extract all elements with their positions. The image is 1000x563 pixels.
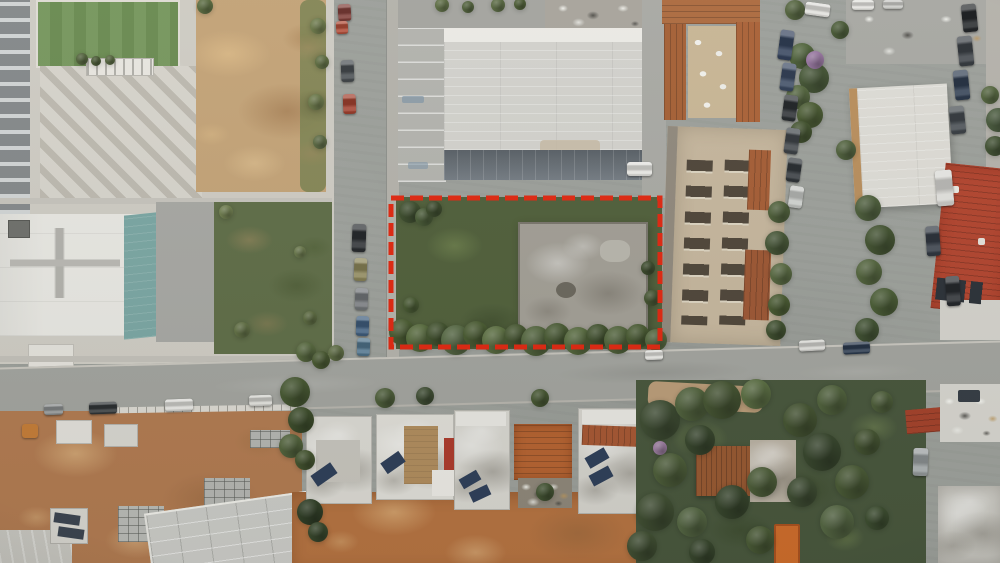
car-grey-right-street-4 — [949, 105, 967, 134]
car-red-small-left-street — [336, 21, 349, 35]
car-steelblue-left-street — [357, 338, 371, 356]
car-grey-left-street — [355, 288, 369, 310]
car-dark-east-street — [785, 157, 802, 183]
car-black-right-street-6 — [945, 276, 961, 307]
suv-dark-main-road — [89, 402, 117, 415]
car-olive-left-street — [354, 258, 368, 281]
pickup-white-main-road — [165, 399, 193, 412]
car-blue-right-street-3 — [952, 69, 970, 100]
car-black-east-street — [781, 94, 798, 122]
car-black-right-street-1 — [961, 3, 979, 32]
car-white-top-edge-1 — [852, 0, 874, 10]
van-white-main-road — [249, 395, 272, 407]
car-red-left-street — [343, 94, 357, 114]
aerial-photo-canvas — [0, 0, 1000, 563]
car-darkgrey-left-street — [341, 60, 355, 82]
car-grey-right-street-2 — [956, 35, 974, 66]
car-light-east-street — [788, 185, 805, 209]
van-white-right-street — [934, 169, 954, 206]
car-silver-right-street-bottom — [913, 448, 929, 477]
car-blue-east-street-1 — [777, 29, 795, 61]
car-dark-right-street-5 — [925, 226, 941, 257]
van-white-plot-corner — [627, 162, 652, 176]
cars-layer — [0, 0, 1000, 563]
van-white-topright — [804, 1, 831, 17]
car-grey-east-street — [783, 127, 800, 155]
car-blue-left-street — [356, 316, 370, 336]
van-grey-main-road — [44, 404, 63, 416]
car-white-main-road-right — [799, 339, 826, 351]
car-black-left-street — [352, 224, 367, 252]
car-darkblue-main-road-right — [843, 341, 871, 354]
car-white-main-road-center — [645, 350, 663, 361]
car-blue-east-street-2 — [779, 62, 797, 92]
car-maroon-left-street — [338, 4, 352, 22]
car-grey-top-edge-2 — [883, 0, 903, 9]
